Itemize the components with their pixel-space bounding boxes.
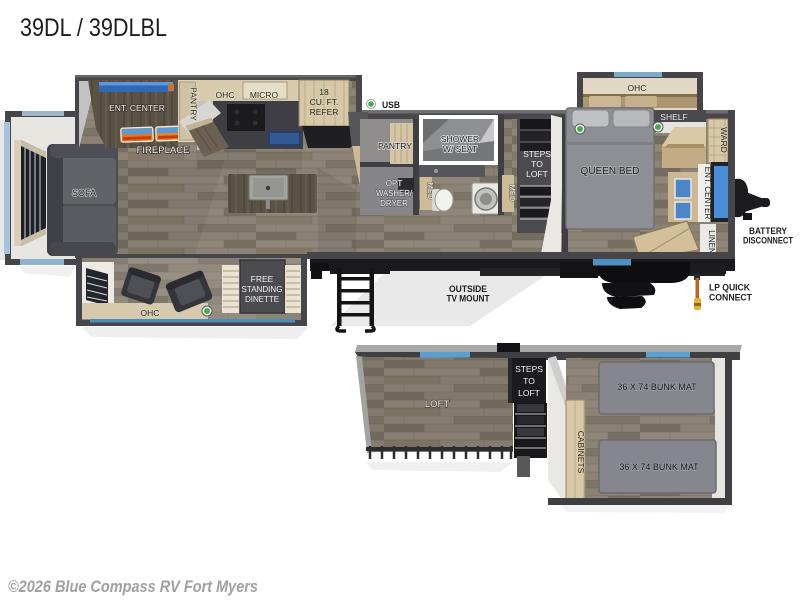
svg-text:CABINETS: CABINETS bbox=[576, 431, 586, 474]
svg-text:36 X 74 BUNK MAT: 36 X 74 BUNK MAT bbox=[617, 382, 697, 392]
svg-text:36 X 74 BUNK MAT: 36 X 74 BUNK MAT bbox=[619, 462, 699, 472]
svg-text:OUTSIDE: OUTSIDE bbox=[449, 284, 487, 294]
svg-text:USB: USB bbox=[382, 100, 400, 111]
svg-text:MICRO: MICRO bbox=[250, 90, 279, 100]
svg-text:DISCONNECT: DISCONNECT bbox=[743, 236, 793, 246]
svg-text:ENT. CENTER: ENT. CENTER bbox=[109, 103, 165, 113]
svg-text:PANTRY: PANTRY bbox=[378, 142, 413, 151]
svg-text:39DL / 39DLBL: 39DL / 39DLBL bbox=[20, 14, 167, 42]
svg-text:SHELF: SHELF bbox=[660, 112, 687, 122]
svg-text:WASHER/: WASHER/ bbox=[376, 189, 413, 198]
svg-text:LOFT: LOFT bbox=[518, 388, 540, 398]
svg-text:FIREPLACE: FIREPLACE bbox=[137, 145, 190, 156]
svg-text:TV MOUNT: TV MOUNT bbox=[447, 294, 490, 304]
svg-text:LP QUICK: LP QUICK bbox=[709, 283, 750, 293]
svg-text:MED: MED bbox=[508, 185, 517, 202]
svg-text:WARD: WARD bbox=[719, 127, 729, 153]
svg-text:QUEEN BED: QUEEN BED bbox=[581, 166, 640, 177]
svg-text:STEPS: STEPS bbox=[515, 364, 543, 374]
svg-text:LINEN: LINEN bbox=[707, 230, 716, 254]
svg-text:PANTRY: PANTRY bbox=[189, 87, 199, 121]
svg-text:SOFA: SOFA bbox=[72, 188, 96, 198]
svg-text:W/ SEAT: W/ SEAT bbox=[443, 144, 477, 154]
svg-text:CONNECT: CONNECT bbox=[709, 293, 752, 303]
svg-text:©2026 Blue Compass RV Fort Mye: ©2026 Blue Compass RV Fort Myers bbox=[8, 577, 258, 596]
svg-text:DRYER: DRYER bbox=[380, 199, 408, 208]
svg-text:ENT. CENTER: ENT. CENTER bbox=[703, 167, 712, 220]
svg-text:FREE: FREE bbox=[251, 274, 274, 284]
svg-text:REFER: REFER bbox=[310, 107, 339, 117]
svg-text:STANDING: STANDING bbox=[242, 284, 283, 294]
svg-text:TO: TO bbox=[531, 159, 543, 169]
svg-text:TO: TO bbox=[523, 376, 535, 386]
svg-text:OHC: OHC bbox=[216, 90, 235, 100]
svg-text:STEPS: STEPS bbox=[523, 149, 551, 159]
svg-text:OPT: OPT bbox=[386, 179, 403, 188]
svg-text:CU. FT.: CU. FT. bbox=[310, 97, 339, 107]
svg-text:BATTERY: BATTERY bbox=[749, 226, 787, 236]
svg-text:OHC: OHC bbox=[628, 83, 647, 93]
svg-text:OHC: OHC bbox=[141, 308, 160, 318]
svg-text:LOFT: LOFT bbox=[526, 169, 548, 179]
svg-text:DINETTE: DINETTE bbox=[245, 294, 279, 304]
svg-text:LOFT: LOFT bbox=[425, 399, 449, 410]
svg-text:SHOWER: SHOWER bbox=[441, 134, 479, 144]
svg-text:18: 18 bbox=[319, 87, 329, 97]
